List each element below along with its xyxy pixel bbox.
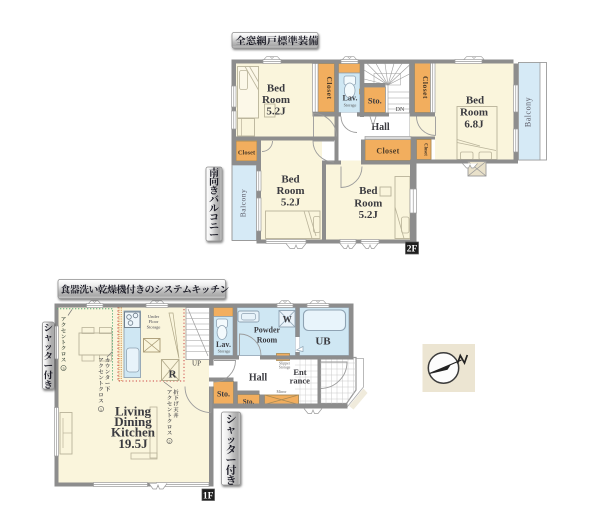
svg-text:Powder: Powder (254, 326, 281, 335)
svg-text:Bed: Bed (359, 185, 377, 197)
svg-text:UP: UP (192, 360, 201, 368)
svg-text:2F: 2F (407, 245, 418, 255)
svg-text:Closet: Closet (238, 150, 256, 157)
svg-text:Hall: Hall (371, 122, 390, 133)
svg-text:Storage: Storage (344, 103, 357, 108)
svg-text:DN: DN (396, 107, 405, 113)
svg-text:19.5J: 19.5J (118, 436, 148, 451)
svg-text:Hall: Hall (249, 373, 268, 384)
svg-text:Closet: Closet (376, 146, 399, 155)
svg-text:Balcony: Balcony (239, 189, 248, 218)
svg-text:Bed: Bed (267, 83, 285, 95)
svg-text:Storage: Storage (147, 324, 161, 329)
svg-text:5.2J: 5.2J (281, 197, 301, 209)
svg-text:Room: Room (354, 198, 382, 210)
svg-text:Storage: Storage (279, 366, 291, 370)
svg-text:Lav.: Lav. (343, 94, 358, 103)
svg-text:Storage: Storage (218, 349, 231, 354)
svg-text:Sto.: Sto. (368, 96, 382, 106)
svg-text:6.8J: 6.8J (464, 119, 484, 131)
svg-text:Room: Room (262, 94, 290, 106)
svg-text:5.2J: 5.2J (266, 106, 286, 118)
svg-text:R: R (169, 369, 178, 381)
svg-text:Balcony: Balcony (524, 97, 533, 127)
svg-text:Closet: Closet (421, 76, 430, 99)
svg-text:5.2J: 5.2J (359, 209, 379, 221)
svg-text:Sto.: Sto. (217, 390, 230, 399)
svg-text:1F: 1F (203, 491, 214, 501)
svg-text:W: W (283, 315, 292, 325)
svg-text:Bed: Bed (281, 174, 299, 186)
svg-text:Room: Room (276, 185, 304, 197)
svg-text:UB: UB (315, 336, 331, 348)
svg-text:Bed: Bed (466, 95, 484, 107)
svg-text:Room: Room (460, 107, 488, 119)
svg-text:Room: Room (257, 336, 278, 345)
svg-text:Mirror: Mirror (276, 390, 287, 394)
svg-text:rance: rance (290, 376, 311, 386)
svg-text:Closet: Closet (325, 77, 334, 100)
svg-text:Closet: Closet (423, 143, 428, 156)
